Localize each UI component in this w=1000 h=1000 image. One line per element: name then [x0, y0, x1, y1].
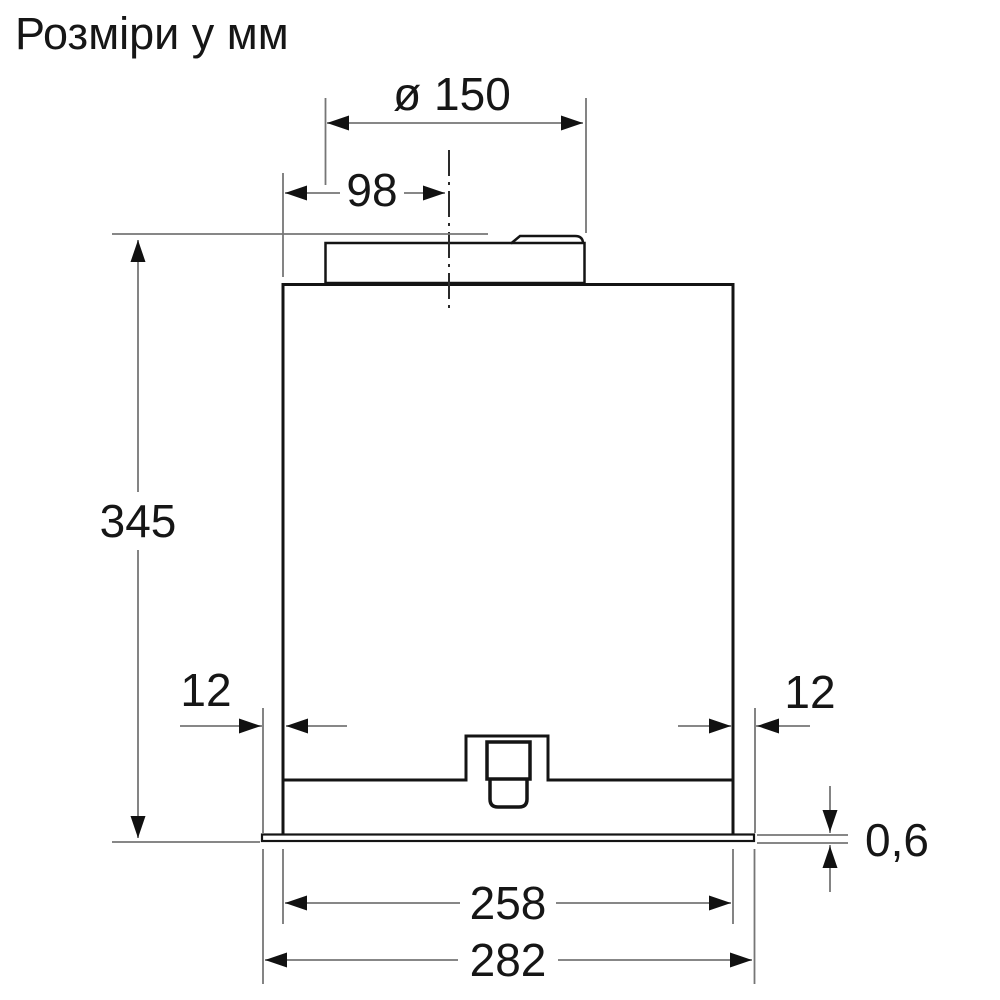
arrowhead-icon — [327, 116, 349, 131]
page-title: Розміри у мм — [15, 8, 289, 59]
bottom-plate — [262, 835, 754, 842]
label-inset-left: 12 — [180, 664, 231, 716]
dimension-inset-right — [678, 708, 810, 833]
arrowhead-icon — [757, 719, 779, 734]
junction-box-lower — [490, 779, 527, 807]
dimension-lines — [112, 98, 848, 984]
label-height: 345 — [100, 495, 177, 547]
arrowhead-icon — [265, 953, 287, 968]
arrowhead-icon — [423, 186, 445, 201]
arrowhead-icon — [239, 719, 261, 734]
dimension-inset-left — [180, 708, 347, 833]
hood-body — [283, 285, 733, 835]
duct-collar — [326, 243, 585, 283]
arrowhead-icon — [709, 719, 731, 734]
arrowhead-icon — [561, 116, 583, 131]
arrowhead-icon — [730, 953, 752, 968]
appliance-outline — [262, 150, 754, 841]
arrowhead-icon — [286, 719, 308, 734]
label-inset-right: 12 — [784, 666, 835, 718]
arrowhead-icon — [285, 186, 307, 201]
hood-dimension-drawing: Розміри у мм ø 150 98 345 12 12 0,6 258 … — [0, 0, 1000, 1000]
label-plate-width: 282 — [470, 934, 547, 986]
dimension-diagram-page: Розміри у мм ø 150 98 345 12 12 0,6 258 … — [0, 0, 1000, 1000]
arrowhead-icon — [131, 240, 146, 262]
label-diameter: ø 150 — [393, 68, 511, 120]
label-panel-thickness: 0,6 — [865, 814, 929, 866]
arrowhead-icon — [285, 896, 307, 911]
label-duct-offset: 98 — [346, 164, 397, 216]
junction-box-upper — [487, 742, 530, 779]
arrowhead-icon — [709, 896, 731, 911]
dimension-panel-thickness — [757, 786, 848, 892]
arrowhead-icon — [823, 846, 838, 868]
arrowhead-icon — [131, 816, 146, 838]
arrowhead-icon — [823, 810, 838, 832]
label-body-width: 258 — [470, 877, 547, 929]
